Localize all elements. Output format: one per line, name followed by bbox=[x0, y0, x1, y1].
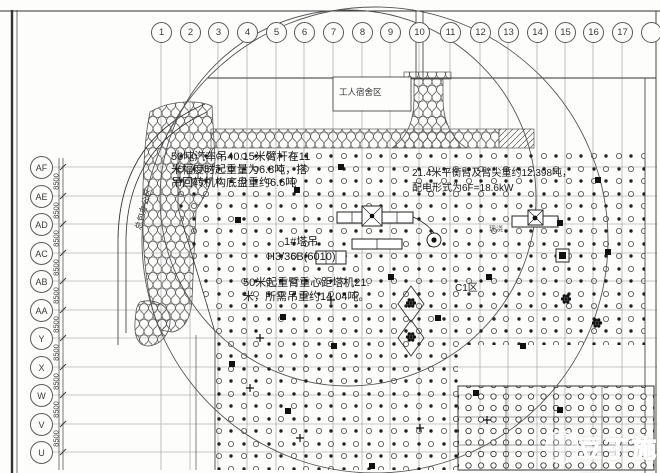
dim-label: 8500 bbox=[52, 341, 61, 365]
tower-crane-name: 1#塔吊 bbox=[284, 236, 318, 249]
column-bubble-14: 14 bbox=[527, 22, 548, 43]
row-bubble-w: W bbox=[30, 384, 53, 407]
dim-label: 8500 bbox=[52, 284, 61, 308]
dim-label: 8500 bbox=[52, 427, 61, 451]
column-bubble-11: 11 bbox=[440, 22, 461, 43]
site-plan-drawing bbox=[0, 0, 660, 473]
column-bubble-partial bbox=[641, 22, 660, 43]
row-bubble-af: AF bbox=[30, 156, 53, 179]
site-plan-screenshot: 1 2 3 4 5 6 7 8 9 10 11 12 13 14 15 16 1… bbox=[0, 0, 660, 473]
column-bubble-16: 16 bbox=[583, 22, 604, 43]
truck-crane-note-line3: 吊回转机构底盘重约6.6吨 bbox=[171, 177, 296, 190]
balance-arm-note-line1: 21.4米平衡臂及臂尖重约12.398吨， bbox=[412, 166, 572, 181]
watermark-logo-icon bbox=[545, 430, 579, 464]
column-bubble-8: 8 bbox=[352, 22, 373, 43]
column-bubble-5: 5 bbox=[266, 22, 287, 43]
dim-label: 8500 bbox=[52, 256, 61, 280]
row-bubble-x: X bbox=[30, 356, 53, 379]
tower-crane-model: H3/36B(6010) bbox=[267, 251, 336, 264]
column-bubble-12: 12 bbox=[470, 22, 491, 43]
top-access-lines bbox=[416, 11, 423, 77]
dim-label: 8500 bbox=[52, 398, 61, 422]
dim-label: 8500 bbox=[52, 199, 61, 223]
column-bubble-13: 13 bbox=[498, 22, 519, 43]
column-bubble-1: 1 bbox=[151, 22, 172, 43]
dim-label: 8500 bbox=[52, 313, 61, 337]
column-bubble-15: 15 bbox=[555, 22, 576, 43]
column-bubble-6: 6 bbox=[294, 22, 315, 43]
row-bubble-y: Y bbox=[30, 327, 53, 350]
truck-crane-note-line2: 米幅度时起重量为6.8吨，搭 bbox=[171, 164, 307, 177]
row-bubble-u: U bbox=[30, 441, 53, 464]
row-bubble-v: V bbox=[30, 413, 53, 436]
truck-crane-note-line1: 50吨汽车吊40.15米臂杆在11 bbox=[171, 151, 310, 164]
column-bubble-9: 9 bbox=[380, 22, 401, 43]
column-bubble-3: 3 bbox=[208, 22, 229, 43]
row-bubble-ab: AB bbox=[30, 270, 53, 293]
column-bubble-4: 4 bbox=[237, 22, 258, 43]
row-bubble-ae: AE bbox=[30, 185, 53, 208]
row-bubble-ac: AC bbox=[30, 242, 53, 265]
watermark-text: 豆丁施工 bbox=[578, 429, 660, 473]
cast-in-place-label: 现浇 bbox=[489, 224, 503, 234]
worker-dorm-label: 工人宿舍区 bbox=[339, 86, 382, 98]
jib-note-line1: 50米起重臂重心距塔机21. bbox=[243, 277, 370, 290]
row-bubble-aa: AA bbox=[30, 299, 53, 322]
row-bubble-ad: AD bbox=[30, 213, 53, 236]
dim-label: 8500 bbox=[52, 370, 61, 394]
column-bubble-7: 7 bbox=[323, 22, 344, 43]
zone-label: C1区 bbox=[455, 279, 478, 294]
column-bubble-2: 2 bbox=[180, 22, 201, 43]
column-bubble-10: 10 bbox=[409, 22, 430, 43]
balance-arm-note-line2: 配电形式为6F=18.6kW bbox=[412, 181, 513, 196]
jib-note-line2: 米，所需吊重约14.04吨。 bbox=[243, 291, 370, 304]
dim-label: 8500 bbox=[52, 227, 61, 251]
road-strip bbox=[211, 129, 499, 148]
column-bubble-17: 17 bbox=[612, 22, 633, 43]
dim-label: 8500 bbox=[52, 170, 61, 194]
